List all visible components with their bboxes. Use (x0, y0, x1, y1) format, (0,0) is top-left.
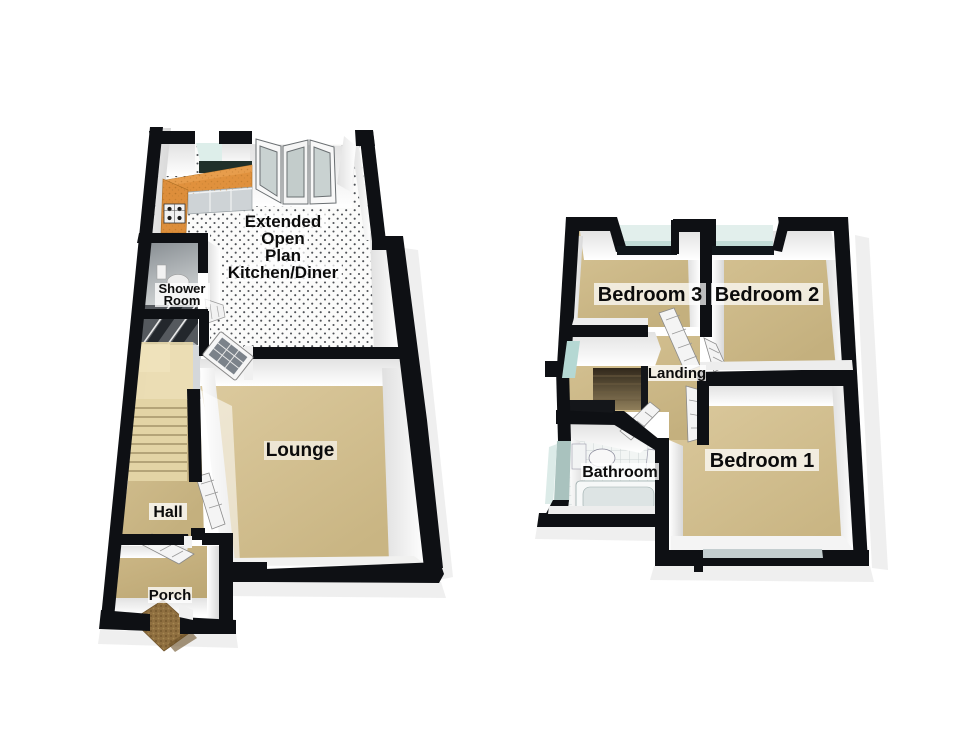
svg-text:Hall: Hall (153, 504, 182, 521)
svg-text:Bedroom 2: Bedroom 2 (715, 284, 819, 306)
svg-text:Lounge: Lounge (266, 440, 335, 461)
svg-text:Room: Room (164, 293, 201, 308)
svg-text:Landing: Landing (648, 365, 706, 382)
svg-text:Bedroom 3: Bedroom 3 (598, 284, 702, 306)
svg-text:Bathroom: Bathroom (582, 464, 658, 481)
svg-text:Kitchen/Diner: Kitchen/Diner (228, 263, 339, 282)
svg-text:Bedroom 1: Bedroom 1 (710, 450, 814, 472)
svg-text:Porch: Porch (149, 587, 192, 604)
